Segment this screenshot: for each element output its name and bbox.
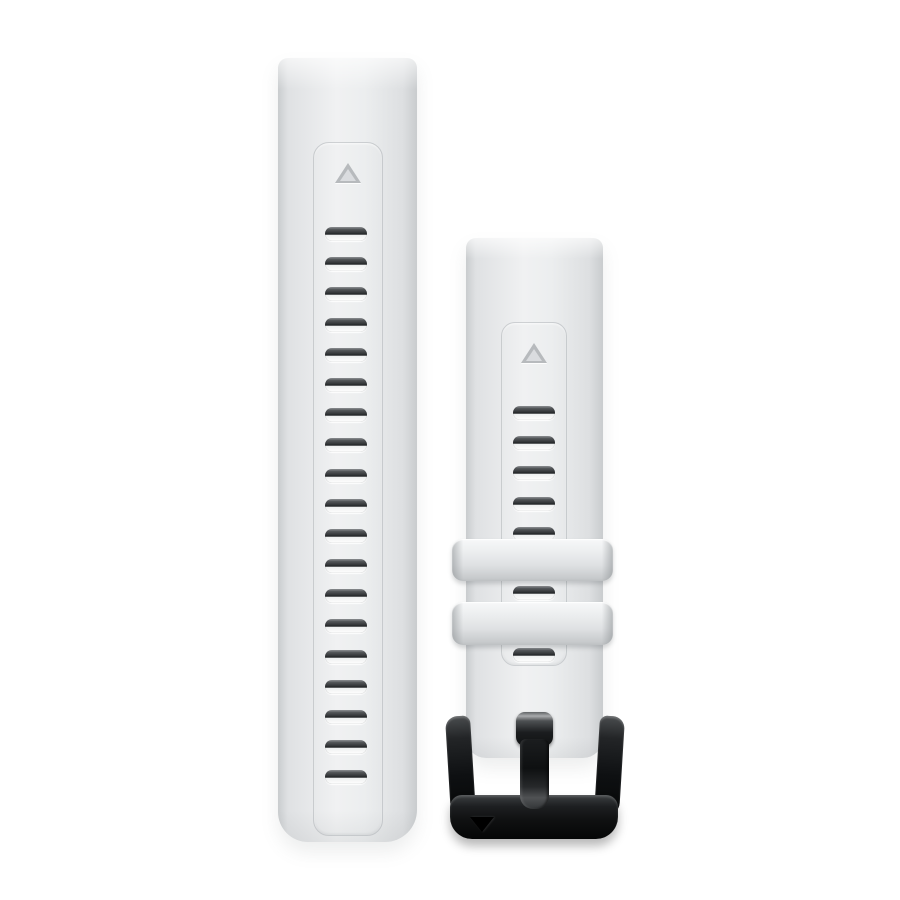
adjustment-slot [513, 497, 555, 511]
adjustment-slot [513, 436, 555, 450]
long-strap-slots [325, 227, 367, 784]
product-image [0, 0, 900, 900]
short-strap-band [466, 238, 603, 758]
adjustment-slot [325, 740, 367, 754]
adjustment-slot [325, 770, 367, 784]
keeper-loop-upper [452, 539, 613, 581]
long-strap-band [278, 58, 417, 842]
adjustment-slot [513, 648, 555, 662]
long-strap-triangle-marker-icon [335, 163, 361, 183]
adjustment-slot [325, 650, 367, 664]
adjustment-slot [325, 408, 367, 422]
buckle-tongue [520, 739, 549, 809]
adjustment-slot [325, 529, 367, 543]
adjustment-slot [513, 466, 555, 480]
adjustment-slot [325, 287, 367, 301]
adjustment-slot [325, 348, 367, 362]
adjustment-slot [325, 227, 367, 241]
keeper-loop-lower [452, 602, 613, 645]
adjustment-slot [513, 406, 555, 420]
short-strap-slots-upper [513, 406, 555, 541]
buckle [445, 711, 625, 841]
adjustment-slot [325, 469, 367, 483]
adjustment-slot [325, 499, 367, 513]
adjustment-slot [325, 710, 367, 724]
adjustment-slot [325, 438, 367, 452]
short-strap-slots-lower [513, 648, 555, 662]
adjustment-slot [325, 257, 367, 271]
adjustment-slot [325, 619, 367, 633]
adjustment-slot [325, 680, 367, 694]
adjustment-slot [325, 559, 367, 573]
adjustment-slot [325, 378, 367, 392]
adjustment-slot [325, 589, 367, 603]
short-strap-triangle-marker-icon [521, 343, 547, 363]
short-strap-slots-middle [513, 586, 555, 600]
brand-triangle-logo-icon [470, 817, 494, 832]
adjustment-slot [513, 586, 555, 600]
adjustment-slot [325, 318, 367, 332]
